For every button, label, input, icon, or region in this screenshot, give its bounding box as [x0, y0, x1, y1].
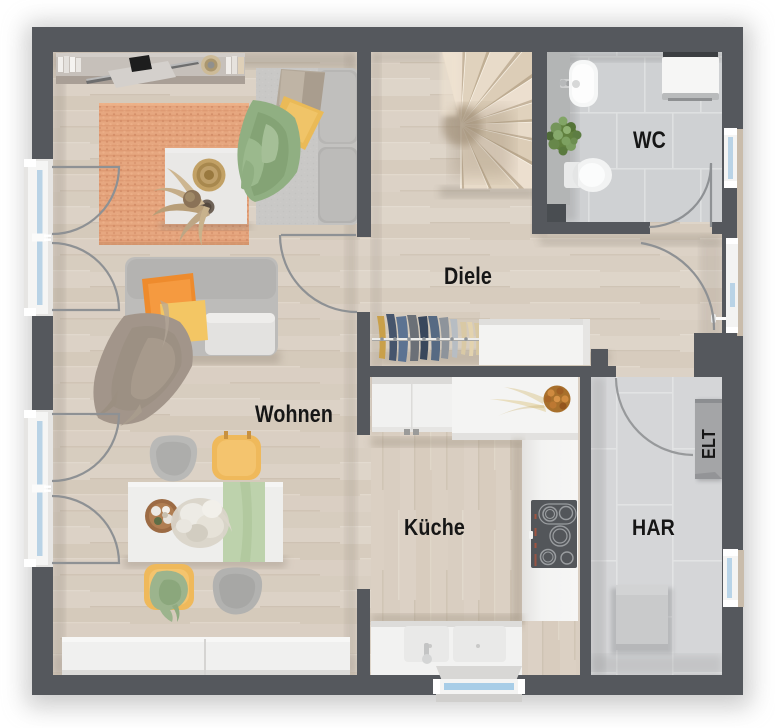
svg-text:Diele: Diele — [444, 263, 492, 290]
svg-text:ELT: ELT — [699, 429, 719, 459]
svg-text:WC: WC — [633, 127, 666, 154]
svg-text:Wohnen: Wohnen — [255, 401, 333, 428]
svg-text:HAR: HAR — [632, 515, 675, 540]
svg-text:Küche: Küche — [404, 514, 465, 540]
